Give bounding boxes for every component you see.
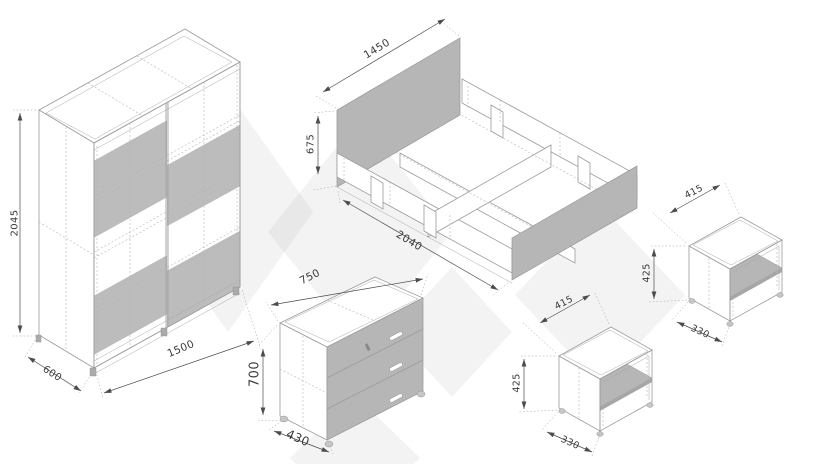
nightstand-back-drawing bbox=[649, 183, 783, 346]
nightstand-back-height-label: 425 bbox=[642, 263, 653, 282]
dresser-drawing bbox=[256, 274, 428, 456]
wardrobe-height-label: 2045 bbox=[10, 209, 21, 236]
dresser-height-label: 700 bbox=[248, 361, 263, 387]
furniture-line-art bbox=[0, 0, 825, 464]
technical-drawing-canvas: 2045 1500 600 1450 675 2040 750 700 430 … bbox=[0, 0, 825, 464]
nightstand-front-height-label: 425 bbox=[512, 373, 523, 392]
bed-height-label: 675 bbox=[306, 134, 317, 154]
wardrobe-left-side bbox=[39, 110, 94, 368]
wardrobe-drawing bbox=[13, 29, 261, 399]
